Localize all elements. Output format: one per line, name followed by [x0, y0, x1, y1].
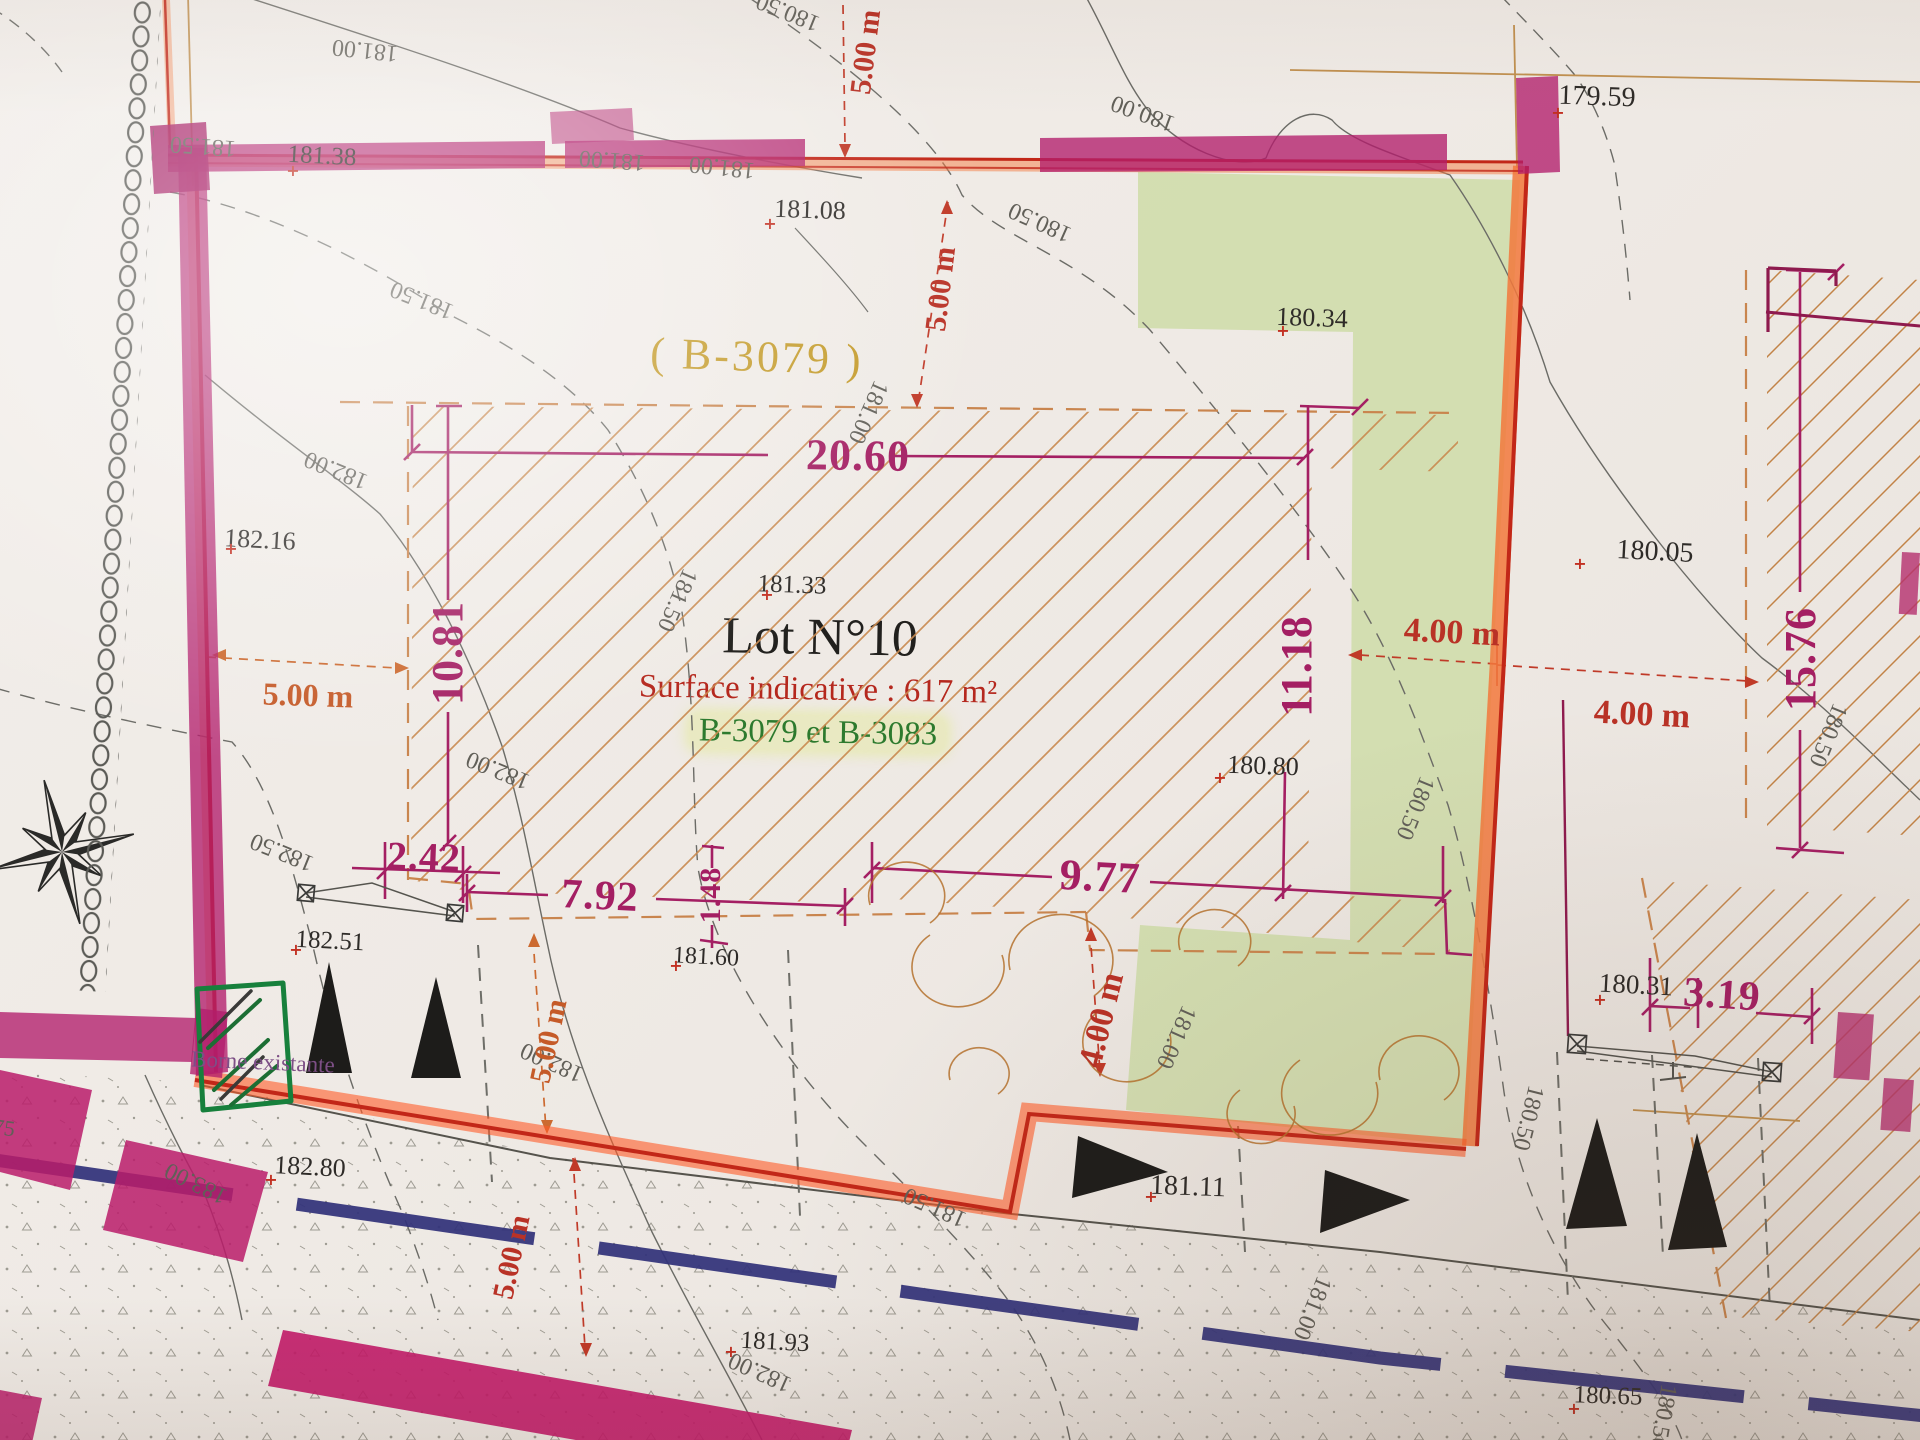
building-envelope	[188, 0, 1920, 1332]
survey-plan-photo: 181.38181.08179.59180.34182.16181.33180.…	[0, 0, 1920, 1440]
borne-note: Borne existante	[191, 1047, 336, 1076]
plan-drawing	[0, 0, 1920, 1440]
boundary-marker-icons	[297, 884, 1781, 1081]
fence-chain-symbol	[79, 0, 162, 992]
